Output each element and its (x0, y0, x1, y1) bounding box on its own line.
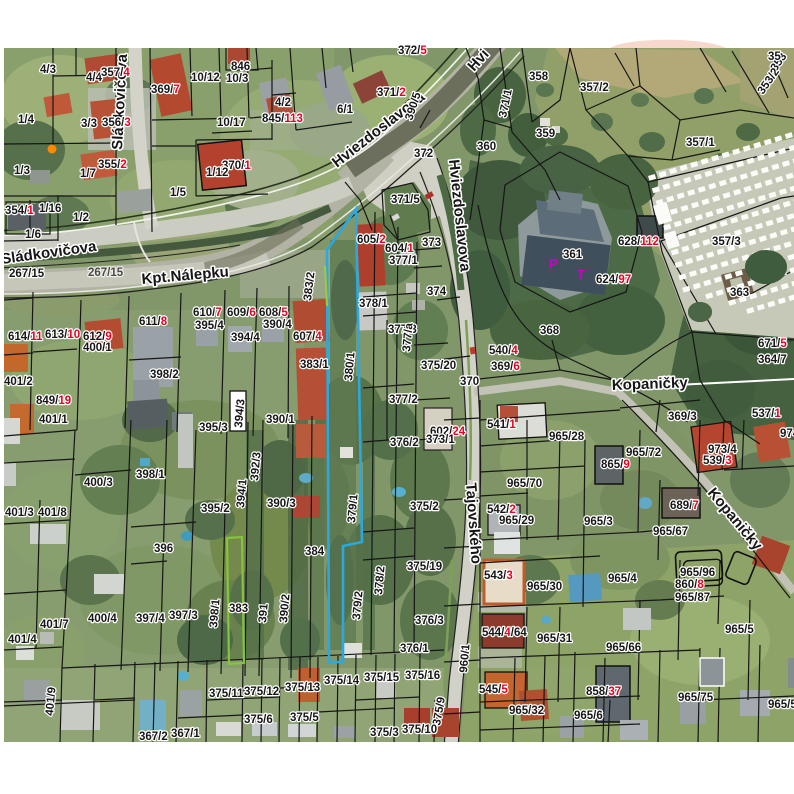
svg-text:965/75: 965/75 (678, 692, 714, 704)
svg-text:541/1: 541/1 (487, 419, 516, 431)
svg-text:1/16: 1/16 (39, 203, 61, 215)
svg-text:628/112: 628/112 (618, 236, 659, 248)
svg-text:401/2: 401/2 (4, 376, 33, 388)
svg-text:609/6: 609/6 (227, 307, 256, 319)
svg-text:357/3: 357/3 (712, 236, 741, 248)
svg-text:689/7: 689/7 (670, 500, 699, 512)
svg-text:398/1: 398/1 (136, 469, 165, 481)
svg-text:375/6: 375/6 (244, 714, 273, 726)
svg-text:375/10: 375/10 (402, 724, 437, 736)
svg-text:960/1: 960/1 (458, 643, 473, 673)
svg-text:400/1: 400/1 (83, 342, 112, 354)
svg-text:370: 370 (460, 376, 479, 388)
svg-text:613/10: 613/10 (45, 329, 80, 341)
svg-text:380/1: 380/1 (343, 351, 358, 381)
svg-text:3/3: 3/3 (81, 118, 97, 130)
svg-text:368: 368 (540, 325, 560, 337)
svg-text:849/19: 849/19 (36, 395, 71, 407)
svg-text:267/15: 267/15 (9, 268, 45, 280)
svg-text:Kopaničky: Kopaničky (612, 374, 689, 394)
svg-text:376/3: 376/3 (415, 615, 444, 627)
svg-text:610/7: 610/7 (193, 307, 222, 319)
svg-text:375/15: 375/15 (364, 672, 400, 684)
svg-text:384: 384 (305, 546, 325, 558)
svg-text:845/113: 845/113 (262, 113, 303, 125)
svg-text:858/37: 858/37 (586, 686, 621, 698)
svg-text:6/1: 6/1 (337, 104, 354, 116)
svg-text:624/97: 624/97 (596, 274, 631, 286)
svg-text:360: 360 (477, 141, 496, 153)
svg-text:371/5: 371/5 (391, 194, 420, 206)
svg-text:390/3: 390/3 (267, 498, 296, 510)
svg-text:356/3: 356/3 (102, 117, 131, 129)
svg-text:965/87: 965/87 (675, 592, 710, 604)
svg-text:394/3: 394/3 (233, 399, 247, 429)
svg-text:376/2: 376/2 (390, 437, 419, 449)
svg-text:400/4: 400/4 (88, 613, 117, 625)
svg-text:540/4: 540/4 (489, 345, 518, 357)
svg-text:373/1: 373/1 (426, 434, 455, 446)
svg-text:400/3: 400/3 (84, 477, 113, 489)
svg-text:369/7: 369/7 (151, 84, 180, 96)
svg-text:372/5: 372/5 (398, 45, 427, 57)
svg-text:1/5: 1/5 (170, 187, 187, 199)
svg-text:369/3: 369/3 (668, 411, 697, 423)
svg-text:671/5: 671/5 (758, 338, 787, 350)
svg-text:357/2: 357/2 (580, 82, 609, 94)
svg-text:358: 358 (529, 71, 549, 83)
svg-text:401/4: 401/4 (8, 634, 37, 646)
svg-text:364/7: 364/7 (758, 354, 787, 366)
svg-text:390/4: 390/4 (263, 319, 292, 331)
svg-text:974: 974 (780, 428, 794, 440)
svg-text:395/3: 395/3 (199, 422, 228, 434)
svg-text:1/6: 1/6 (25, 229, 41, 241)
svg-text:369/6: 369/6 (491, 361, 520, 373)
svg-text:965/32: 965/32 (509, 705, 544, 717)
svg-text:608/5: 608/5 (259, 307, 288, 319)
svg-text:P: P (549, 256, 558, 271)
svg-text:401/3: 401/3 (5, 507, 34, 519)
svg-text:367/2: 367/2 (139, 731, 168, 743)
svg-text:607/4: 607/4 (293, 331, 322, 343)
svg-text:965/31: 965/31 (537, 633, 573, 645)
svg-text:965/72: 965/72 (626, 447, 661, 459)
svg-text:401/9: 401/9 (44, 687, 58, 717)
svg-text:378/1: 378/1 (359, 298, 388, 310)
svg-text:543/3: 543/3 (484, 570, 513, 582)
svg-text:379/2: 379/2 (351, 591, 365, 621)
svg-text:375/13: 375/13 (285, 682, 320, 694)
svg-text:375/14: 375/14 (324, 675, 360, 687)
svg-text:391: 391 (257, 602, 271, 623)
svg-text:544/4/64: 544/4/64 (482, 627, 527, 639)
svg-text:378/2: 378/2 (373, 566, 387, 596)
svg-text:965/66: 965/66 (606, 642, 641, 654)
svg-text:355/2: 355/2 (98, 159, 127, 171)
svg-text:398/1: 398/1 (208, 598, 223, 628)
svg-text:375/20: 375/20 (421, 360, 456, 372)
svg-text:965/5: 965/5 (725, 624, 754, 636)
svg-text:539/3: 539/3 (703, 455, 732, 467)
svg-text:537/1: 537/1 (752, 408, 781, 420)
svg-text:35: 35 (768, 51, 781, 63)
svg-text:383/1: 383/1 (300, 359, 329, 371)
svg-text:860/8: 860/8 (675, 579, 704, 591)
svg-text:377/2: 377/2 (389, 394, 418, 406)
svg-text:361: 361 (563, 249, 583, 261)
svg-text:4/2: 4/2 (275, 97, 291, 109)
svg-text:390/2: 390/2 (278, 594, 292, 624)
svg-text:611/8: 611/8 (139, 316, 168, 328)
svg-text:604/1: 604/1 (385, 243, 414, 255)
svg-text:1/4: 1/4 (18, 114, 35, 126)
svg-text:390/1: 390/1 (266, 414, 295, 426)
svg-text:363: 363 (730, 287, 749, 299)
svg-text:376/1: 376/1 (400, 643, 429, 655)
svg-text:377/a: 377/a (401, 322, 416, 352)
svg-text:383: 383 (229, 603, 248, 615)
svg-text:359: 359 (536, 128, 555, 140)
svg-text:375/3: 375/3 (370, 727, 399, 739)
svg-text:4/3: 4/3 (40, 64, 56, 76)
svg-text:375/19: 375/19 (407, 561, 442, 573)
svg-text:965/28: 965/28 (549, 431, 585, 443)
svg-text:371/2: 371/2 (377, 87, 406, 99)
svg-text:1/3: 1/3 (14, 165, 30, 177)
svg-text:375/12: 375/12 (244, 686, 279, 698)
svg-text:605/2: 605/2 (357, 234, 386, 246)
svg-text:374: 374 (427, 286, 447, 298)
svg-text:401/8: 401/8 (38, 507, 67, 519)
svg-text:375/11: 375/11 (209, 688, 244, 700)
svg-text:846: 846 (231, 61, 250, 73)
svg-text:1/2: 1/2 (73, 212, 89, 224)
svg-text:401/7: 401/7 (40, 619, 69, 631)
svg-text:865/9: 865/9 (601, 459, 630, 471)
svg-text:375/16: 375/16 (405, 670, 440, 682)
svg-text:373: 373 (422, 237, 441, 249)
svg-text:394/4: 394/4 (231, 332, 260, 344)
svg-text:397/3: 397/3 (169, 610, 198, 622)
svg-text:395/2: 395/2 (201, 503, 230, 515)
svg-text:10/3: 10/3 (226, 73, 248, 85)
svg-text:965/6: 965/6 (574, 710, 603, 722)
svg-text:965/5: 965/5 (768, 699, 794, 711)
svg-text:394/1: 394/1 (235, 478, 250, 508)
svg-text:267/15: 267/15 (88, 267, 124, 279)
svg-text:1/7: 1/7 (80, 168, 96, 180)
svg-text:965/30: 965/30 (527, 581, 562, 593)
svg-text:10/17: 10/17 (217, 117, 246, 129)
svg-text:357/1: 357/1 (686, 137, 715, 149)
svg-text:357/4: 357/4 (101, 67, 130, 79)
svg-text:379/1: 379/1 (346, 493, 361, 523)
svg-text:10/12: 10/12 (191, 72, 220, 84)
svg-text:1/12: 1/12 (206, 167, 228, 179)
svg-text:545/5: 545/5 (479, 684, 508, 696)
svg-text:965/67: 965/67 (653, 526, 688, 538)
svg-text:965/3: 965/3 (584, 516, 613, 528)
svg-text:377/1: 377/1 (389, 255, 418, 267)
svg-text:398/2: 398/2 (150, 369, 179, 381)
svg-text:T: T (577, 267, 585, 282)
svg-text:367/1: 367/1 (171, 728, 200, 740)
svg-text:401/1: 401/1 (39, 414, 68, 426)
svg-text:965/96: 965/96 (680, 567, 715, 579)
svg-text:375/5: 375/5 (290, 712, 319, 724)
svg-text:614/11: 614/11 (8, 331, 43, 343)
svg-text:354/1: 354/1 (5, 205, 34, 217)
svg-text:375/2: 375/2 (410, 501, 439, 513)
svg-text:965/70: 965/70 (507, 478, 542, 490)
svg-text:396: 396 (154, 543, 173, 555)
svg-text:965/4: 965/4 (608, 573, 637, 585)
svg-text:392/3: 392/3 (249, 452, 263, 482)
svg-text:395/4: 395/4 (195, 320, 224, 332)
svg-text:965/29: 965/29 (499, 515, 534, 527)
svg-text:372: 372 (414, 148, 433, 160)
svg-text:397/4: 397/4 (136, 613, 165, 625)
